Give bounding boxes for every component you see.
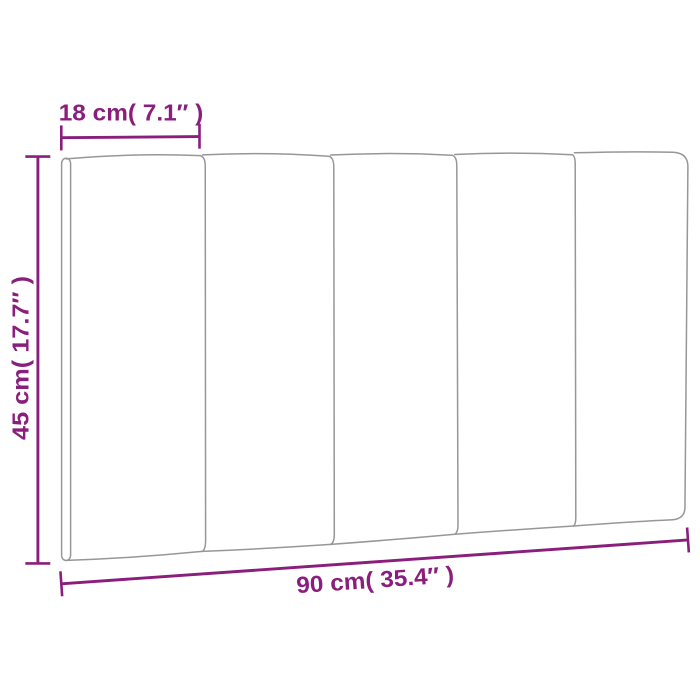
svg-text:45 cm( 17.7″ ): 45 cm( 17.7″ ) [8,276,34,440]
svg-text:18 cm( 7.1″ ): 18 cm( 7.1″ ) [59,99,204,125]
